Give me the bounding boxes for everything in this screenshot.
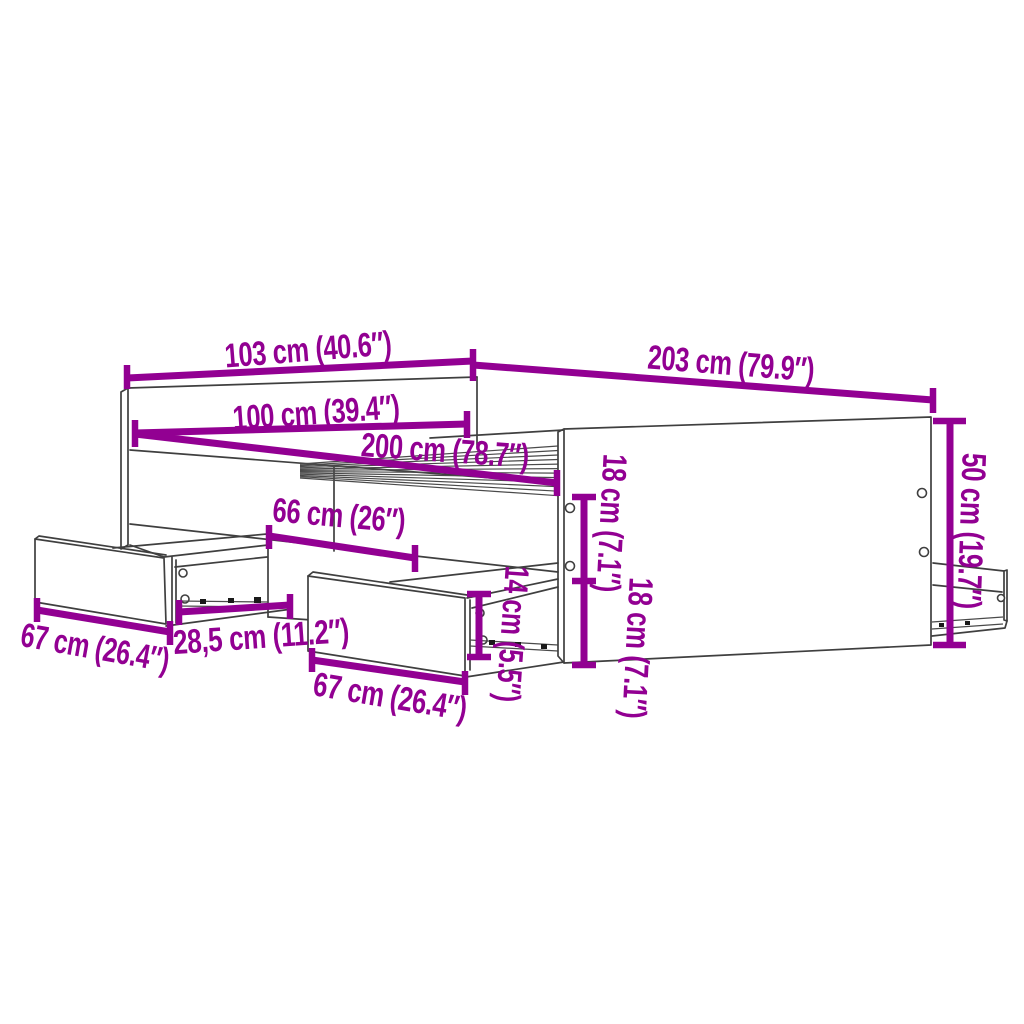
bed-dimension-diagram: 103 cm (40.6″) 203 cm (79.9″) 100 cm (39…	[0, 0, 1024, 1024]
rail-stop	[939, 623, 944, 627]
footboard-left-edge	[558, 429, 564, 663]
rail-stop	[228, 598, 234, 603]
footboard-hole	[920, 548, 929, 557]
drawer-left-inner-edge	[175, 557, 267, 567]
footboard-hole	[566, 504, 575, 513]
headboard-left-edge	[121, 388, 128, 549]
drawer-right-hole	[998, 595, 1005, 602]
drawer-left-sidewall-far	[113, 534, 267, 548]
rail-stop	[965, 621, 970, 625]
drawer-left-hole-top	[179, 569, 187, 577]
label-drawer-extension: 28,5 cm (11.2″)	[172, 612, 350, 662]
drawer-left-sidewall-near	[164, 545, 268, 557]
footboard-hole	[566, 562, 575, 571]
label-opening-width: 66 cm (26″)	[271, 491, 407, 540]
label-center-drawer-width: 67 cm (26.4″)	[310, 665, 469, 728]
footboard-hole	[918, 489, 927, 498]
label-drawer-height: 14 cm (5.5″)	[488, 565, 535, 703]
label-upper-rail-height: 18 cm (7.1″)	[588, 453, 633, 593]
rail-stop	[200, 599, 206, 604]
rail-stop	[541, 644, 547, 649]
label-footboard-height: 50 cm (19.7″)	[949, 452, 992, 609]
rail-stop	[254, 597, 261, 603]
drawer-left-back-edge	[172, 557, 176, 628]
page: 103 cm (40.6″) 203 cm (79.9″) 100 cm (39…	[0, 0, 1024, 1024]
label-lower-rail-height: 18 cm (7.1″)	[614, 577, 659, 720]
